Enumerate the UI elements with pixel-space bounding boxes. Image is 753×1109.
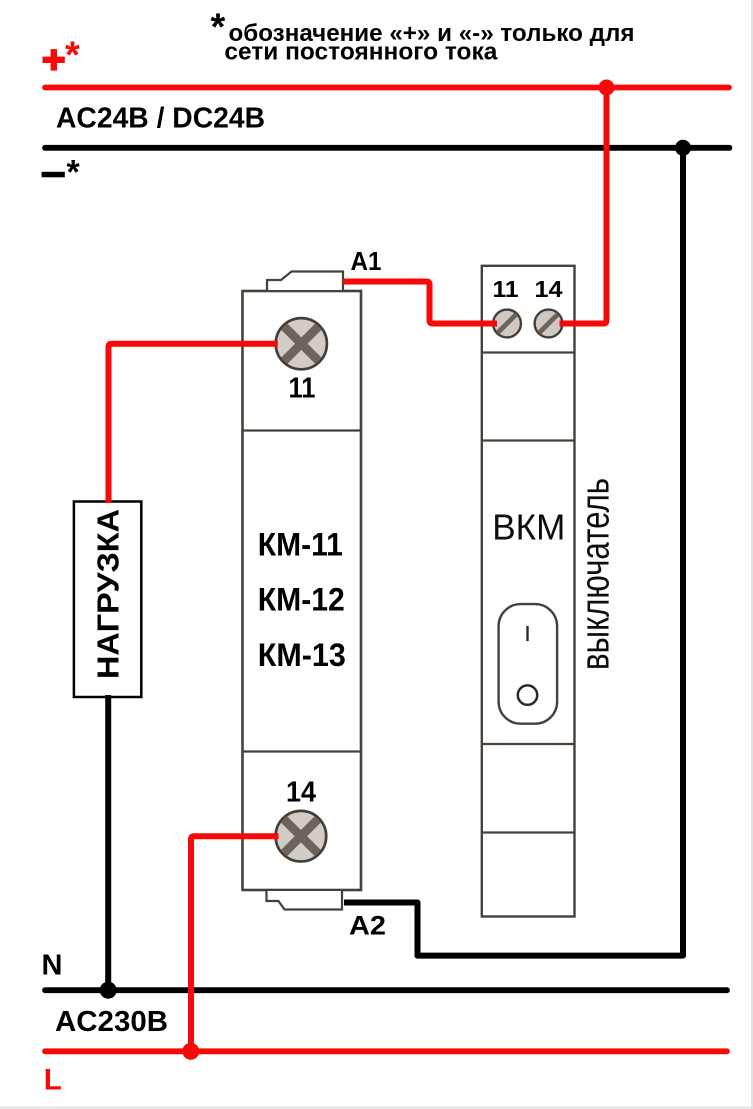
svg-text:КМ-13: КМ-13 xyxy=(258,637,346,673)
svg-text:*: * xyxy=(67,154,81,192)
svg-text:КМ-12: КМ-12 xyxy=(258,582,345,618)
svg-text:КМ-11: КМ-11 xyxy=(258,527,343,563)
svg-text:ВКМ: ВКМ xyxy=(492,507,565,548)
svg-text:*: * xyxy=(65,35,80,77)
svg-text:сети постоянного тока: сети постоянного тока xyxy=(224,39,497,66)
svg-text:выключатель: выключатель xyxy=(574,478,618,670)
svg-text:11: 11 xyxy=(289,373,316,405)
svg-text:14: 14 xyxy=(535,276,563,302)
svg-text:14: 14 xyxy=(286,776,316,808)
svg-text:AC24В / DC24В: AC24В / DC24В xyxy=(56,102,265,134)
svg-text:L: L xyxy=(44,1063,62,1096)
svg-text:11: 11 xyxy=(493,276,519,302)
svg-text:AC230В: AC230В xyxy=(55,1006,168,1038)
svg-text:A1: A1 xyxy=(351,246,382,276)
svg-text:A2: A2 xyxy=(349,910,386,940)
svg-text:НАГРУЗКА: НАГРУЗКА xyxy=(91,509,126,679)
svg-text:N: N xyxy=(42,950,63,982)
svg-text:*: * xyxy=(211,7,226,49)
